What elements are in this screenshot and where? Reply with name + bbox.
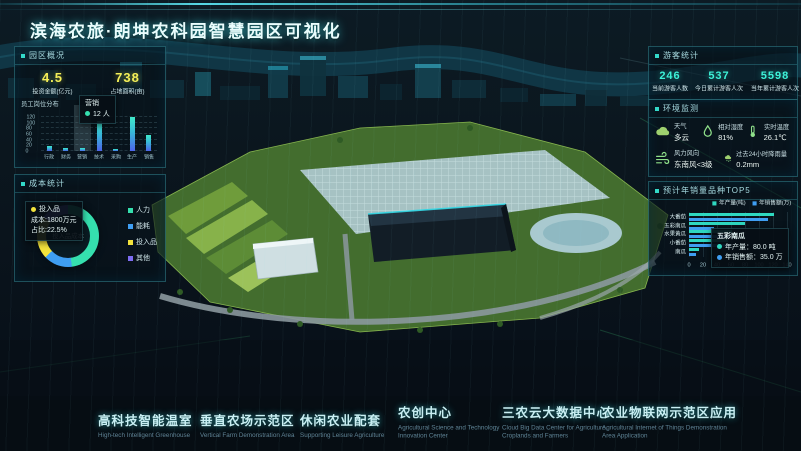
bar-生产[interactable] [130, 117, 135, 151]
bar-group-生产: 生产 [124, 117, 141, 151]
nav-en-label: Agricultural Internet of Things Demonstr… [602, 424, 728, 440]
category-label: 小番茄 [660, 239, 686, 247]
cloud-icon [655, 124, 670, 139]
overview-stats: 4.5 投资金额(亿元) 738 占地面积(亩) [15, 65, 165, 97]
bar-年产量(吨)[interactable] [689, 248, 699, 251]
nav-zh-label: 高科技智能温室 [98, 410, 210, 429]
panel-sales-header: 预计年销量品种TOP5 [649, 182, 797, 200]
env-label: 天气 [674, 121, 688, 130]
stat-area: 738 占地面积(亩) [90, 65, 165, 97]
droplet-icon [701, 124, 715, 139]
nav-zh-label: 垂直农场示范区 [200, 410, 310, 429]
header-accent-line [0, 3, 801, 5]
stat-current-visitors: 246 当前游客人数 [649, 65, 691, 94]
bar-年销售额(万)[interactable] [689, 253, 696, 256]
y-axis-label: 40 [26, 138, 32, 143]
y-axis-label: 0 [25, 149, 28, 154]
legend-swatch [128, 240, 133, 245]
stat-current-visitors-value: 246 [649, 70, 691, 82]
category-label: 大番茄 [660, 213, 686, 221]
env-value: 81% [718, 133, 746, 142]
env-value: 多云 [674, 132, 689, 143]
sales-tooltip-production: 年产量：80.0 吨 [725, 244, 776, 251]
stat-today-visitors-label: 今日累计游客人次 [695, 85, 743, 94]
y-axis-label: 80 [26, 126, 32, 131]
nav-en-label: High-tech Intelligent Greenhouse [98, 433, 199, 441]
header-bullet-icon [21, 182, 25, 186]
sales-tooltip-category: 五彩南瓜 [717, 232, 783, 243]
bar-行政[interactable] [47, 146, 52, 151]
env-item-rainfall: 过去24小时降雨量0.2mm [724, 148, 793, 170]
y-axis-label: 60 [26, 132, 32, 137]
env-label: 实时温度 [764, 122, 789, 131]
bar-年产量(吨)[interactable] [689, 213, 774, 216]
nav-zh-label: 农业物联网示范区应用 [602, 402, 742, 421]
panel-park-overview-title: 园区概况 [29, 50, 65, 61]
cost-tooltip-cost: 成本:1800万元 [31, 216, 77, 227]
stat-investment-label: 投资金额(亿元) [20, 88, 85, 97]
env-value: 0.2mm [736, 160, 793, 169]
panel-environment-title: 环境监测 [663, 103, 699, 114]
wind-icon [655, 151, 670, 166]
legend-swatch [752, 201, 756, 205]
staff-tooltip-category: 营销 [85, 99, 110, 110]
nav-en-label: Cloud Big Data Center for Agriculture, C… [502, 424, 608, 440]
legend-label: 投入品 [136, 237, 157, 247]
panel-cost-statistics: 成本统计 投入品成本 人力 能耗 投入品 其他 投入品 成本:1800万元 占比… [14, 174, 166, 282]
y-axis-label: 20 [26, 143, 32, 148]
cost-tooltip-share: 占比:22.5% [31, 226, 77, 237]
legend-item-labor: 人力 [128, 205, 157, 215]
env-item-wind: 风力风向东南风<3级 [655, 148, 724, 170]
nav-en-label: Agricultural Science and Technology Inno… [398, 424, 504, 440]
staff-chart-title: 员工岗位分布 [21, 100, 59, 109]
legend-item-revenue: 年销售额(万) [752, 199, 791, 207]
category-label: 五彩南瓜 [660, 222, 686, 230]
y-axis-label: 100 [26, 121, 35, 126]
legend-item-production: 年产量(吨) [712, 199, 745, 207]
nav-item-leisure[interactable]: 休闲农业配套 Supporting Leisure Agriculture [300, 410, 400, 441]
header-bullet-icon [655, 107, 659, 111]
blue-dot-icon [717, 255, 722, 260]
stat-year-visitors-value: 5598 [747, 70, 801, 82]
nav-item-innovation-center[interactable]: 农创中心 Agricultural Science and Technology… [398, 402, 516, 442]
x-axis-label: 财务 [61, 153, 71, 160]
stat-today-visitors: 537 今日累计游客人次 [691, 65, 747, 94]
visitor-stats: 246 当前游客人数 537 今日累计游客人次 5598 当年累计游客人次 [649, 65, 797, 94]
nav-item-vertical-farm[interactable]: 垂直农场示范区 Vertical Farm Demonstration Area [200, 410, 310, 441]
nav-en-label: Vertical Farm Demonstration Area [200, 433, 299, 441]
panel-cost-header: 成本统计 [15, 175, 165, 193]
panel-cost-title: 成本统计 [29, 178, 65, 189]
x-axis-label: 营销 [77, 153, 87, 160]
stat-today-visitors-value: 537 [691, 70, 747, 82]
x-axis-label: 0 [687, 263, 690, 269]
bar-年产量(吨)[interactable] [689, 222, 745, 225]
panel-park-overview-header: 园区概况 [15, 47, 165, 65]
stat-investment-value: 4.5 [15, 70, 90, 85]
stat-current-visitors-label: 当前游客人数 [652, 85, 688, 94]
x-axis-label: 20 [700, 263, 706, 269]
sales-row-大番茄: 大番茄 [689, 213, 787, 222]
header-bullet-icon [21, 54, 25, 58]
env-label: 过去24小时降雨量 [736, 149, 787, 158]
legend-label: 其他 [136, 253, 150, 263]
env-item-temperature: 实时温度26.1℃ [746, 121, 792, 143]
panel-sales-title: 预计年销量品种TOP5 [663, 185, 751, 196]
legend-swatch [712, 201, 716, 205]
bar-group-行政: 行政 [41, 117, 58, 151]
staff-chart-tooltip: 营销 12 人 [79, 95, 116, 124]
legend-item-inputs: 投入品 [128, 237, 157, 247]
nav-item-iot-demo[interactable]: 农业物联网示范区应用 Agricultural Internet of Thin… [602, 402, 742, 442]
dashboard-root: 滨海农旅·朗坤农科园智慧园区可视化 园区概况 4.5 投资金额(亿元) 738 … [0, 0, 801, 451]
legend-swatch [128, 256, 133, 261]
sales-chart-tooltip: 五彩南瓜 年产量：80.0 吨 年销售额：35.0 万 [711, 228, 789, 268]
sales-tooltip-production-line: 年产量：80.0 吨 [717, 243, 783, 254]
bar-采购[interactable] [113, 149, 118, 151]
stat-investment: 4.5 投资金额(亿元) [15, 65, 90, 97]
header-bullet-icon [655, 189, 659, 193]
header-accent-line-2 [0, 9, 801, 10]
nav-zh-label: 休闲农业配套 [300, 410, 400, 429]
sales-tooltip-revenue: 年销售额：35.0 万 [725, 254, 783, 261]
environment-grid: 天气多云 相对湿度81% 实时温度26.1℃ 风力风向东南风<3级 过去24小时… [655, 118, 793, 172]
cost-chart-tooltip: 投入品 成本:1800万元 占比:22.5% [25, 201, 83, 241]
panel-visitor-statistics: 游客统计 246 当前游客人数 537 今日累计游客人次 5598 当年累计游客… [648, 46, 798, 100]
panel-park-overview: 园区概况 4.5 投资金额(亿元) 738 占地面积(亩) 员工岗位分布 020… [14, 46, 166, 168]
page-title: 滨海农旅·朗坤农科园智慧园区可视化 [30, 17, 342, 42]
nav-en-label: Supporting Leisure Agriculture [300, 433, 390, 441]
env-value: 26.1℃ [764, 133, 792, 142]
header-bullet-icon [655, 54, 659, 58]
bar-销售[interactable] [146, 135, 151, 151]
panel-sales-top5: 预计年销量品种TOP5 年产量(吨) 年销售额(万) 0204060801001… [648, 181, 798, 276]
y-axis-label: 120 [26, 115, 35, 120]
nav-zh-label: 农创中心 [398, 402, 516, 421]
rain-icon [724, 151, 732, 166]
cost-tooltip-name-line: 投入品 [31, 205, 77, 216]
sales-tooltip-revenue-line: 年销售额：35.0 万 [717, 253, 783, 264]
staff-tooltip-value: 12 人 [93, 111, 110, 118]
env-value: 东南风<3级 [674, 159, 713, 170]
panel-visitor-title: 游客统计 [663, 50, 699, 61]
category-label: 水果黄瓜 [660, 231, 686, 239]
cost-tooltip-name: 投入品 [39, 206, 60, 213]
bar-group-销售: 销售 [140, 117, 157, 151]
env-label: 风力风向 [674, 148, 709, 157]
x-axis-label: 行政 [44, 153, 54, 160]
cost-legend: 人力 能耗 投入品 其他 [128, 205, 157, 269]
teal-dot-icon [85, 111, 90, 116]
legend-label: 年产量(吨) [719, 199, 746, 207]
panel-environment-monitor: 环境监测 天气多云 相对湿度81% 实时温度26.1℃ 风力风向东南风<3级 过… [648, 99, 798, 177]
legend-item-other: 其他 [128, 253, 157, 263]
yellow-dot-icon [31, 207, 36, 212]
legend-label: 年销售额(万) [758, 199, 791, 207]
legend-item-energy: 能耗 [128, 221, 157, 231]
teal-dot-icon [717, 244, 722, 249]
category-label: 南瓜 [660, 248, 686, 256]
x-axis-label: 销售 [144, 153, 154, 160]
nav-item-greenhouse[interactable]: 高科技智能温室 High-tech Intelligent Greenhouse [98, 410, 210, 441]
x-axis-label: 技术 [94, 153, 104, 160]
legend-swatch [128, 224, 133, 229]
x-axis-label: 生产 [127, 153, 137, 160]
sales-legend: 年产量(吨) 年销售额(万) [712, 199, 791, 207]
legend-label: 人力 [136, 205, 150, 215]
staff-tooltip-value-line: 12 人 [85, 110, 110, 121]
legend-label: 能耗 [136, 221, 150, 231]
legend-swatch [128, 208, 133, 213]
stat-year-visitors-label: 当年累计游客人次 [751, 85, 799, 94]
bar-group-财务: 财务 [58, 117, 75, 151]
bar-营销[interactable] [80, 148, 85, 151]
panel-visitor-header: 游客统计 [649, 47, 797, 65]
bar-财务[interactable] [63, 148, 68, 151]
env-item-humidity: 相对湿度81% [701, 121, 747, 143]
stat-year-visitors: 5598 当年累计游客人次 [747, 65, 801, 94]
panel-environment-header: 环境监测 [649, 100, 797, 118]
x-axis-label: 采购 [111, 153, 121, 160]
stat-area-value: 738 [90, 70, 165, 85]
thermometer-icon [746, 124, 760, 139]
env-label: 相对湿度 [718, 122, 743, 131]
bar-技术[interactable] [97, 121, 102, 151]
env-item-weather: 天气多云 [655, 121, 701, 143]
